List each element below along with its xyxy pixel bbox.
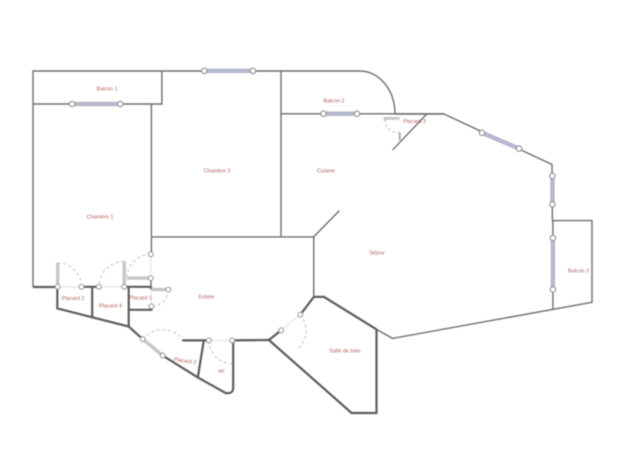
- svg-text:Balcon 2: Balcon 2: [324, 99, 345, 105]
- svg-text:Placard 3: Placard 3: [403, 119, 426, 125]
- svg-text:Séjour: Séjour: [369, 251, 385, 257]
- svg-text:Cuisine: Cuisine: [317, 169, 335, 175]
- svg-text:Balcon 1: Balcon 1: [97, 87, 118, 93]
- svg-text:Entrée: Entrée: [199, 295, 215, 301]
- svg-text:Balcon 3: Balcon 3: [568, 269, 589, 275]
- svg-text:Salle de bain: Salle de bain: [329, 349, 360, 355]
- svg-text:Placard 4: Placard 4: [99, 304, 122, 310]
- svg-text:Chambre 2: Chambre 2: [204, 169, 231, 175]
- svg-text:Placard 1: Placard 1: [129, 296, 152, 302]
- svg-text:Placard 2: Placard 2: [62, 296, 85, 302]
- svg-text:Chambre 1: Chambre 1: [87, 215, 114, 221]
- svg-text:wc: wc: [217, 369, 225, 375]
